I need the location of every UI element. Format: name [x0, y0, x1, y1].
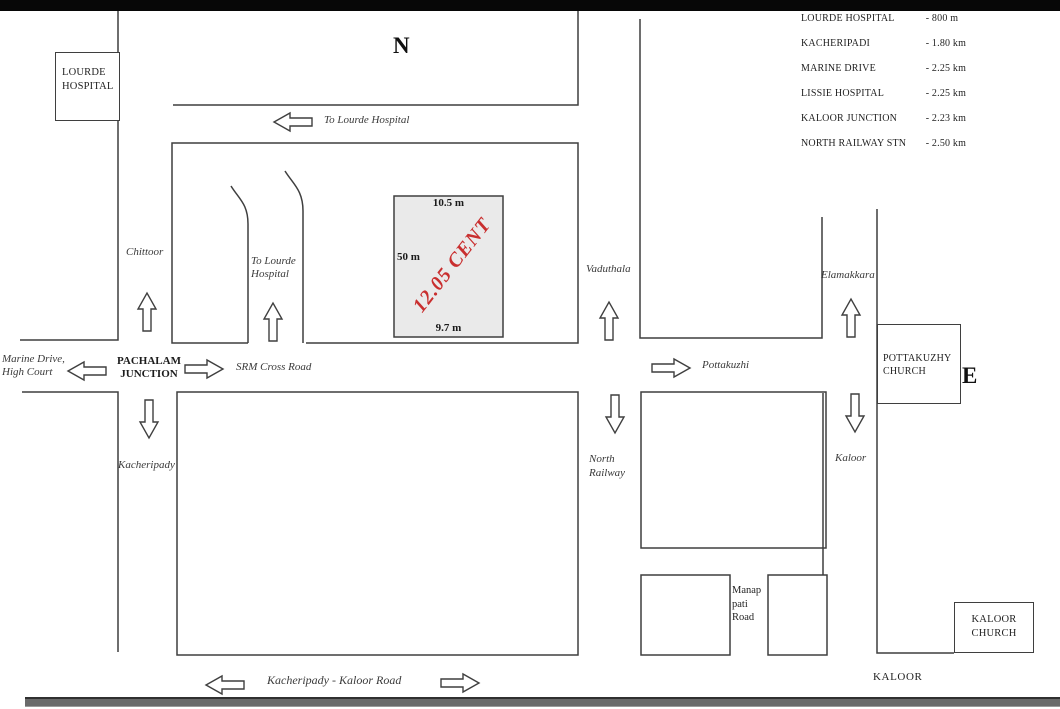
kaloor-church-label: KALOOR CHURCH — [955, 613, 1033, 640]
arrow-east-srm — [185, 360, 223, 378]
distance-value: - 1.80 km — [926, 38, 966, 49]
distance-row: LISSIE HOSPITAL - 2.25 km — [801, 88, 966, 100]
arrow-north-lourde-inner — [264, 303, 282, 341]
compass-east: E — [962, 363, 977, 389]
pachalam-junction-label: PACHALAM JUNCTION — [114, 355, 184, 381]
to-lourde-inner-label: To Lourde Hospital — [251, 255, 315, 281]
arrow-west-kacheripady-kaloor — [206, 676, 244, 694]
pottakuzhy-church-label: POTTAKUZHY CHURCH — [883, 352, 957, 378]
kacheripady-kaloor-road-label: Kacheripady - Kaloor Road — [267, 673, 401, 688]
distance-value: - 2.25 km — [926, 88, 966, 99]
vaduthala-label: Vaduthala — [586, 263, 631, 275]
manappati-road-label: Manap pati Road — [732, 584, 772, 625]
compass-north: N — [393, 33, 410, 59]
distance-row: LOURDE HOSPITAL - 800 m — [801, 13, 966, 25]
kacheripady-label: Kacheripady — [118, 459, 175, 471]
distance-value: - 2.23 km — [926, 113, 966, 124]
kaloor-label: Kaloor — [835, 452, 866, 464]
lourde-hospital-box: LOURDE HOSPITAL — [55, 52, 120, 121]
distance-name: KACHERIPADI — [801, 38, 923, 49]
arrow-east-kacheripady-kaloor — [441, 674, 479, 692]
distance-name: KALOOR JUNCTION — [801, 113, 923, 124]
bottom-left-block — [177, 392, 578, 655]
distance-name: NORTH RAILWAY STN — [801, 138, 923, 149]
kacheripady-road-edge — [22, 392, 118, 652]
distance-row: KACHERIPADI - 1.80 km — [801, 38, 966, 50]
plot-block-outline — [172, 143, 578, 343]
lower-block-a — [641, 575, 730, 655]
srm-cross-road-label: SRM Cross Road — [236, 361, 311, 373]
distance-name: LISSIE HOSPITAL — [801, 88, 923, 99]
plot-west-dimension: 50 m — [397, 251, 420, 263]
arrow-west-to-lourde — [274, 113, 312, 131]
arrow-south-kaloor — [846, 394, 864, 432]
arrow-north-vaduthala — [600, 302, 618, 340]
distance-value: - 800 m — [926, 13, 959, 24]
kaloor-area-label: KALOOR — [873, 671, 922, 683]
north-railway-label: North Railway — [589, 453, 639, 481]
distance-name: MARINE DRIVE — [801, 63, 923, 74]
distance-row: NORTH RAILWAY STN - 2.50 km — [801, 138, 966, 150]
distance-name: LOURDE HOSPITAL — [801, 13, 923, 24]
location-sketch-map: N E LOURDE HOSPITAL POTTAKUZHY CHURCH KA… — [0, 0, 1060, 709]
distance-table: LOURDE HOSPITAL - 800 m KACHERIPADI - 1.… — [801, 13, 966, 163]
arrow-south-north-railway — [606, 395, 624, 433]
chittoor-label: Chittoor — [126, 246, 163, 258]
upper-right-block — [640, 19, 822, 338]
marine-drive-high-court-label: Marine Drive, High Court — [2, 353, 76, 379]
arrow-north-chittoor — [138, 293, 156, 331]
lourde-hospital-label: LOURDE HOSPITAL — [62, 66, 114, 93]
lower-block-b — [768, 575, 827, 655]
arrow-north-elamakkara — [842, 299, 860, 337]
pottakuzhy-church-box: POTTAKUZHY CHURCH — [877, 324, 961, 404]
east-road-edge — [877, 209, 954, 653]
distance-row: MARINE DRIVE - 2.25 km — [801, 63, 966, 75]
distance-value: - 2.50 km — [926, 138, 966, 149]
elamakkara-label: Elamakkara — [821, 269, 875, 281]
north-block-edge — [173, 11, 578, 105]
curved-road-left — [231, 186, 248, 343]
arrow-south-kacheripady — [140, 400, 158, 438]
kaloor-church-box: KALOOR CHURCH — [954, 602, 1034, 653]
pottakuzhi-label: Pottakuzhi — [702, 359, 749, 371]
mid-right-block — [641, 392, 826, 548]
to-lourde-top-label: To Lourde Hospital — [324, 114, 409, 126]
arrow-east-pottakuzhi — [652, 359, 690, 377]
distance-row: KALOOR JUNCTION - 2.23 km — [801, 113, 966, 125]
bottom-road-bar — [25, 697, 1060, 707]
distance-value: - 2.25 km — [926, 63, 966, 74]
